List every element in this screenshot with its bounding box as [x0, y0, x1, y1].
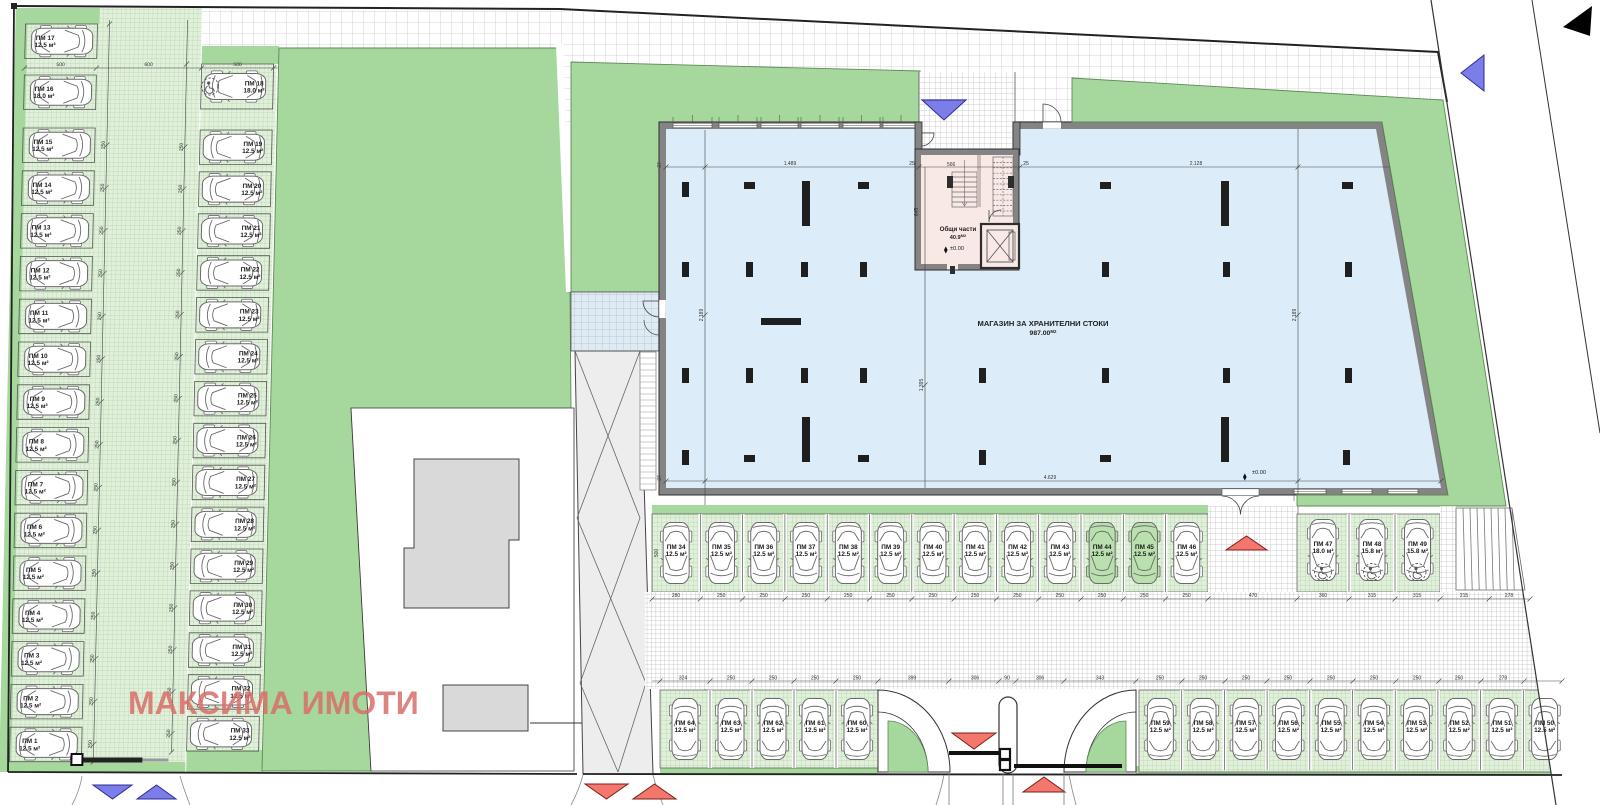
svg-text:ПМ 15: ПМ 15 — [33, 139, 52, 146]
svg-text:ПМ 57: ПМ 57 — [1236, 720, 1255, 727]
svg-text:250: 250 — [759, 593, 768, 599]
svg-text:12.5 м²: 12.5 м² — [1193, 727, 1214, 734]
svg-text:12.5 м²: 12.5 м² — [1092, 551, 1113, 558]
svg-text:12.5 м²: 12.5 м² — [238, 316, 259, 323]
svg-text:12.5 м²: 12.5 м² — [19, 745, 40, 752]
svg-text:12.5 м²: 12.5 м² — [242, 148, 263, 155]
svg-text:±0.00: ±0.00 — [950, 246, 964, 252]
svg-text:ПМ 6: ПМ 6 — [27, 524, 43, 531]
svg-text:250: 250 — [886, 593, 895, 599]
svg-text:315: 315 — [1368, 593, 1377, 599]
svg-text:12.5 м²: 12.5 м² — [922, 551, 943, 558]
svg-text:645: 645 — [914, 208, 920, 217]
svg-text:250: 250 — [1156, 676, 1165, 682]
svg-text:ПМ 1: ПМ 1 — [22, 738, 38, 745]
svg-text:ПМ 64: ПМ 64 — [676, 720, 695, 727]
svg-text:250: 250 — [88, 740, 94, 749]
svg-text:500: 500 — [233, 62, 242, 68]
svg-text:12.5 м²: 12.5 м² — [20, 703, 41, 710]
svg-text:250: 250 — [929, 593, 938, 599]
svg-text:250: 250 — [170, 520, 176, 529]
svg-text:250: 250 — [1199, 676, 1208, 682]
svg-text:250: 250 — [175, 310, 181, 319]
svg-text:250: 250 — [169, 604, 175, 613]
svg-text:ПМ 34: ПМ 34 — [667, 544, 686, 551]
svg-text:12.5 м²: 12.5 м² — [236, 442, 257, 449]
svg-text:12.5 м²: 12.5 м² — [27, 403, 48, 410]
svg-text:ПМ 49: ПМ 49 — [1408, 541, 1427, 548]
svg-text:15.8 м²: 15.8 м² — [1361, 548, 1382, 555]
svg-text:250: 250 — [1370, 676, 1379, 682]
svg-text:250: 250 — [1455, 676, 1464, 682]
svg-text:12.5 м²: 12.5 м² — [31, 189, 52, 196]
svg-text:250: 250 — [173, 394, 179, 403]
svg-text:ПМ 39: ПМ 39 — [881, 544, 900, 551]
svg-text:12.5 м²: 12.5 м² — [1176, 551, 1197, 558]
svg-text:ПМ 38: ПМ 38 — [839, 544, 858, 551]
svg-text:250: 250 — [971, 593, 980, 599]
svg-text:250: 250 — [179, 143, 185, 152]
svg-text:ПМ 2: ПМ 2 — [23, 695, 39, 702]
svg-text:ПМ 43: ПМ 43 — [1050, 544, 1069, 551]
svg-text:ПМ 13: ПМ 13 — [32, 225, 51, 232]
svg-text:250: 250 — [1056, 593, 1065, 599]
svg-text:ПМ 27: ПМ 27 — [236, 476, 255, 483]
svg-text:1.489: 1.489 — [784, 161, 797, 167]
svg-text:250: 250 — [99, 226, 105, 235]
svg-text:ПМ 35: ПМ 35 — [712, 544, 731, 551]
svg-text:12.5 м²: 12.5 м² — [796, 551, 817, 558]
svg-text:12.5 м²: 12.5 м² — [666, 551, 687, 558]
svg-text:12.5 м²: 12.5 м² — [235, 483, 256, 490]
svg-text:МАКСИМА ИМОТИ: МАКСИМА ИМОТИ — [128, 685, 419, 721]
svg-text:ПМ 8: ПМ 8 — [29, 439, 45, 446]
svg-text:250: 250 — [90, 611, 96, 620]
svg-text:12.5 м²: 12.5 м² — [762, 727, 783, 734]
svg-text:2.128: 2.128 — [1190, 161, 1203, 167]
svg-text:12.5 м²: 12.5 м² — [838, 551, 859, 558]
svg-text:ПМ 5: ПМ 5 — [26, 567, 42, 574]
svg-text:2.189: 2.189 — [699, 309, 705, 322]
svg-text:12.5 м²: 12.5 м² — [239, 274, 260, 281]
svg-text:250: 250 — [769, 676, 778, 682]
svg-text:12.5 м²: 12.5 м² — [28, 317, 49, 324]
svg-text:12.5 м²: 12.5 м² — [32, 146, 53, 153]
svg-text:12.5 м²: 12.5 м² — [231, 651, 252, 658]
svg-text:250: 250 — [1413, 676, 1422, 682]
svg-text:278: 278 — [1505, 593, 1514, 599]
svg-text:250: 250 — [1013, 593, 1022, 599]
svg-text:12.5 м²: 12.5 м² — [711, 551, 732, 558]
svg-text:12.5 м²: 12.5 м² — [1491, 727, 1512, 734]
svg-text:25: 25 — [1023, 161, 1029, 167]
svg-text:250: 250 — [90, 654, 96, 663]
svg-text:12.5 м²: 12.5 м² — [1235, 727, 1256, 734]
svg-text:250: 250 — [1242, 676, 1251, 682]
svg-text:ПМ 24: ПМ 24 — [239, 351, 258, 358]
svg-text:12.5 м²: 12.5 м² — [1449, 727, 1470, 734]
svg-text:250: 250 — [717, 593, 726, 599]
svg-text:12.5 м²: 12.5 м² — [804, 727, 825, 734]
svg-text:12.5 м²: 12.5 м² — [1150, 727, 1171, 734]
svg-text:250: 250 — [844, 593, 853, 599]
svg-text:ПМ 9: ПМ 9 — [30, 396, 46, 403]
svg-text:12.5 м²: 12.5 м² — [21, 660, 42, 667]
svg-text:12.5 м²: 12.5 м² — [674, 727, 695, 734]
svg-text:ПМ 60: ПМ 60 — [848, 720, 867, 727]
svg-text:250: 250 — [98, 269, 104, 278]
svg-text:37: 37 — [657, 475, 663, 481]
svg-text:ПМ 44: ПМ 44 — [1093, 544, 1112, 551]
svg-text:12.5 м²: 12.5 м² — [238, 358, 259, 365]
svg-text:250: 250 — [95, 397, 101, 406]
svg-text:12.5 м²: 12.5 м² — [27, 360, 48, 367]
svg-text:ПМ 61: ПМ 61 — [806, 720, 825, 727]
svg-text:215: 215 — [1460, 593, 1469, 599]
svg-text:12.5 м²: 12.5 м² — [1007, 551, 1028, 558]
svg-text:12.5 м²: 12.5 м² — [34, 42, 55, 49]
svg-text:ПМ 16: ПМ 16 — [35, 86, 54, 93]
svg-text:12.5 м²: 12.5 м² — [237, 400, 258, 407]
svg-text:250: 250 — [92, 526, 98, 535]
svg-text:ПМ 53: ПМ 53 — [1407, 720, 1426, 727]
svg-text:250: 250 — [171, 478, 177, 487]
svg-text:ПМ 17: ПМ 17 — [36, 35, 55, 42]
svg-text:ПМ 46: ПМ 46 — [1177, 544, 1196, 551]
svg-text:280: 280 — [672, 593, 681, 599]
svg-text:12.5 м²: 12.5 м² — [241, 190, 262, 197]
svg-text:ПМ 25: ПМ 25 — [238, 392, 257, 399]
svg-text:250: 250 — [1284, 676, 1293, 682]
svg-text:25: 25 — [909, 161, 915, 167]
svg-text:ПМ 20: ПМ 20 — [242, 183, 261, 190]
svg-text:250: 250 — [170, 562, 176, 571]
svg-text:ПМ 11: ПМ 11 — [30, 310, 49, 317]
svg-text:566: 566 — [947, 162, 956, 168]
svg-text:250: 250 — [802, 593, 811, 599]
svg-text:ПМ 56: ПМ 56 — [1279, 720, 1298, 727]
svg-text:12.5 м²: 12.5 м² — [24, 531, 45, 538]
svg-text:250: 250 — [727, 676, 736, 682]
svg-text:4.629: 4.629 — [1044, 475, 1057, 481]
svg-text:12.5 м²: 12.5 м² — [1363, 727, 1384, 734]
svg-text:ПМ 45: ПМ 45 — [1135, 544, 1154, 551]
svg-text:ПМ 36: ПМ 36 — [754, 544, 773, 551]
svg-text:ПМ 58: ПМ 58 — [1194, 720, 1213, 727]
svg-text:12.5 м²: 12.5 м² — [240, 232, 261, 239]
svg-text:12.5 м²: 12.5 м² — [30, 232, 51, 239]
svg-text:324: 324 — [679, 676, 688, 682]
svg-text:ПМ 33: ПМ 33 — [231, 728, 250, 735]
svg-text:ПМ 30: ПМ 30 — [233, 602, 252, 609]
svg-text:12.5 м²: 12.5 м² — [720, 727, 741, 734]
svg-text:343: 343 — [1096, 676, 1105, 682]
svg-text:ПМ 23: ПМ 23 — [240, 309, 259, 316]
svg-text:12.5 м²: 12.5 м² — [1049, 551, 1070, 558]
svg-text:250: 250 — [101, 141, 107, 150]
svg-text:ПМ 50: ПМ 50 — [1535, 720, 1554, 727]
svg-text:250: 250 — [91, 569, 97, 578]
svg-text:90: 90 — [1004, 676, 1010, 682]
svg-text:250: 250 — [100, 183, 106, 192]
svg-text:250: 250 — [811, 676, 820, 682]
svg-text:ПМ 14: ПМ 14 — [32, 182, 51, 189]
svg-text:12.5 м²: 12.5 м² — [229, 735, 250, 742]
svg-text:ПМ 55: ПМ 55 — [1322, 720, 1341, 727]
svg-text:250: 250 — [1327, 676, 1336, 682]
svg-text:500: 500 — [56, 62, 65, 68]
svg-text:18.0 м²: 18.0 м² — [1312, 548, 1333, 555]
svg-text:12.5 м²: 12.5 м² — [846, 727, 867, 734]
svg-text:МАГАЗИН ЗА ХРАНИТЕЛНИ СТОКИ: МАГАЗИН ЗА ХРАНИТЕЛНИ СТОКИ — [978, 319, 1109, 328]
svg-text:ПМ 54: ПМ 54 — [1364, 720, 1383, 727]
svg-text:12.5 м²: 12.5 м² — [1406, 727, 1427, 734]
svg-text:ПМ 12: ПМ 12 — [31, 267, 50, 274]
svg-text:315: 315 — [1413, 593, 1422, 599]
svg-text:ПМ 40: ПМ 40 — [924, 544, 943, 551]
svg-text:500: 500 — [654, 549, 660, 558]
svg-text:ПМ 22: ПМ 22 — [241, 267, 260, 274]
svg-text:250: 250 — [89, 697, 95, 706]
svg-text:12.5 м²: 12.5 м² — [23, 574, 44, 581]
svg-text:12.5 м²: 12.5 м² — [22, 617, 43, 624]
svg-text:12.5 м²: 12.5 м² — [965, 551, 986, 558]
svg-text:ПМ 10: ПМ 10 — [29, 353, 48, 360]
svg-text:12.5 м²: 12.5 м² — [1321, 727, 1342, 734]
svg-text:12.5 м²: 12.5 м² — [232, 609, 253, 616]
svg-text:12.5 м²: 12.5 м² — [233, 567, 254, 574]
svg-text:ПМ 41: ПМ 41 — [966, 544, 985, 551]
svg-text:306: 306 — [971, 676, 980, 682]
svg-text:12.5 м²: 12.5 м² — [1278, 727, 1299, 734]
svg-text:±0.00: ±0.00 — [1252, 470, 1266, 476]
svg-text:12.5 м²: 12.5 м² — [234, 525, 255, 532]
svg-text:12.5 м²: 12.5 м² — [753, 551, 774, 558]
svg-text:ПМ 31: ПМ 31 — [232, 644, 251, 651]
svg-text:250: 250 — [1182, 593, 1191, 599]
svg-text:ПМ 7: ПМ 7 — [28, 481, 44, 488]
svg-text:ПМ 42: ПМ 42 — [1008, 544, 1027, 551]
svg-text:306: 306 — [1036, 676, 1045, 682]
svg-text:12.5 м²: 12.5 м² — [26, 446, 47, 453]
svg-text:1.395: 1.395 — [919, 379, 925, 392]
svg-text:ПМ 29: ПМ 29 — [234, 560, 253, 567]
svg-text:ПМ 18: ПМ 18 — [245, 80, 264, 87]
svg-text:ПМ 48: ПМ 48 — [1363, 541, 1382, 548]
svg-text:ПМ 51: ПМ 51 — [1493, 720, 1512, 727]
svg-text:250: 250 — [177, 226, 183, 235]
svg-text:ПМ 26: ПМ 26 — [237, 434, 256, 441]
svg-text:250: 250 — [172, 436, 178, 445]
svg-text:ПМ 37: ПМ 37 — [797, 544, 816, 551]
svg-text:250: 250 — [853, 676, 862, 682]
svg-text:37: 37 — [657, 162, 663, 168]
svg-text:250: 250 — [96, 355, 102, 364]
svg-text:ПМ 62: ПМ 62 — [764, 720, 783, 727]
svg-text:250: 250 — [97, 312, 103, 321]
svg-text:250: 250 — [176, 268, 182, 277]
svg-text:ПМ 47: ПМ 47 — [1314, 541, 1333, 548]
svg-text:250: 250 — [93, 483, 99, 492]
svg-text:250: 250 — [166, 729, 172, 738]
svg-text:ПМ 63: ПМ 63 — [722, 720, 741, 727]
svg-text:ПМ 52: ПМ 52 — [1450, 720, 1469, 727]
svg-text:278: 278 — [1499, 676, 1508, 682]
svg-text:12.5 м²: 12.5 м² — [880, 551, 901, 558]
svg-text:18.0 м²: 18.0 м² — [33, 93, 54, 100]
svg-text:ПМ 28: ПМ 28 — [235, 518, 254, 525]
svg-text:12.5 м²: 12.5 м² — [25, 489, 46, 496]
svg-text:12.5 м²: 12.5 м² — [29, 275, 50, 282]
svg-text:470: 470 — [1249, 593, 1258, 599]
svg-text:250: 250 — [1098, 593, 1107, 599]
svg-text:ПМ 21: ПМ 21 — [242, 225, 261, 232]
svg-text:250: 250 — [94, 440, 100, 449]
svg-text:ПМ 59: ПМ 59 — [1151, 720, 1170, 727]
svg-text:18.0 м²: 18.0 м² — [243, 88, 264, 95]
svg-text:ПМ 19: ПМ 19 — [243, 141, 262, 148]
svg-text:12.5 м²: 12.5 м² — [1134, 551, 1155, 558]
svg-text:399: 399 — [908, 676, 917, 682]
svg-text:360: 360 — [1319, 593, 1328, 599]
svg-text:Общи части: Общи части — [940, 226, 977, 233]
svg-text:ПМ 3: ПМ 3 — [24, 653, 40, 660]
svg-text:15.8 м²: 15.8 м² — [1407, 548, 1428, 555]
svg-text:250: 250 — [174, 352, 180, 361]
svg-text:250: 250 — [1140, 593, 1149, 599]
svg-text:2.189: 2.189 — [1292, 309, 1298, 322]
svg-text:ПМ 4: ПМ 4 — [25, 610, 41, 617]
svg-text:250: 250 — [178, 185, 184, 194]
svg-text:250: 250 — [168, 645, 174, 654]
svg-text:600: 600 — [144, 62, 153, 68]
